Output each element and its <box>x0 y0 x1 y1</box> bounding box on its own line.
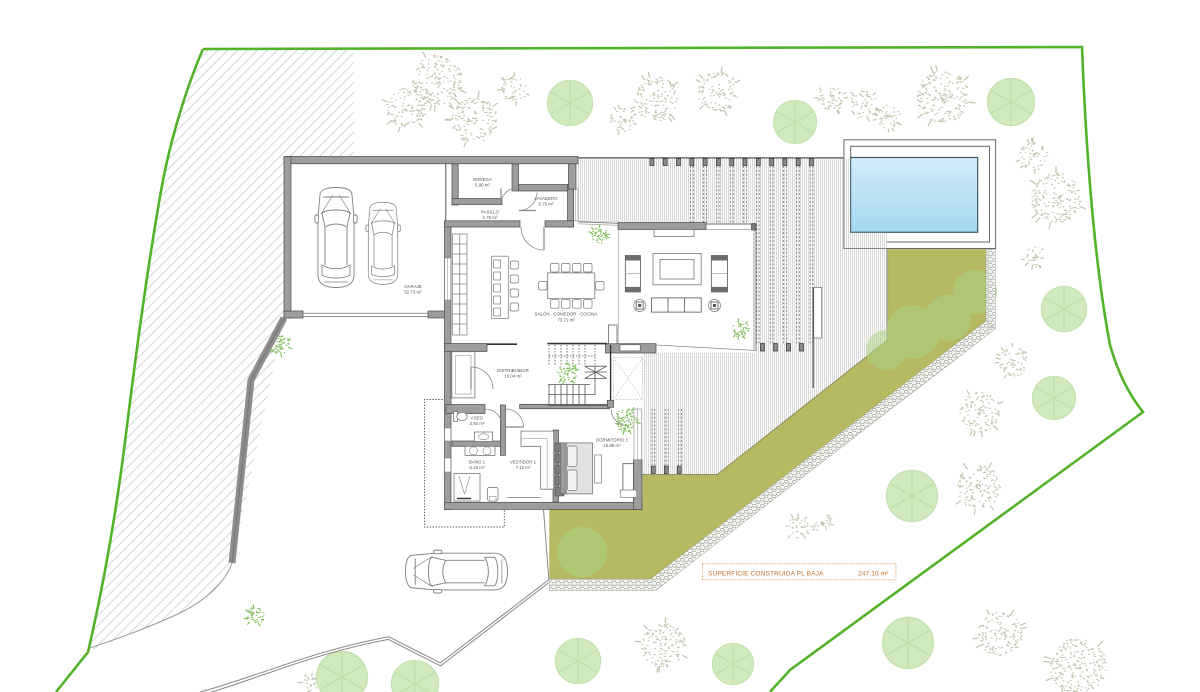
svg-text:PASILLO: PASILLO <box>481 210 500 215</box>
svg-text:LAVADERO: LAVADERO <box>534 196 558 201</box>
svg-text:16.04 m²: 16.04 m² <box>504 374 522 379</box>
svg-text:73.71 m²: 73.71 m² <box>557 318 575 323</box>
svg-text:2.75 m²: 2.75 m² <box>483 215 498 220</box>
svg-text:52.73 m²: 52.73 m² <box>404 290 422 295</box>
svg-text:5.90 m²: 5.90 m² <box>475 183 490 188</box>
svg-text:ASEO: ASEO <box>471 416 484 421</box>
svg-text:DISTRIBUIDOR: DISTRIBUIDOR <box>497 368 528 373</box>
svg-text:3.92 m²: 3.92 m² <box>470 421 485 426</box>
svg-text:GARAJE: GARAJE <box>404 284 422 289</box>
svg-text:7.12 m²: 7.12 m² <box>516 465 531 470</box>
svg-text:6.18 m²: 6.18 m² <box>470 465 485 470</box>
svg-text:BAÑO 1: BAÑO 1 <box>469 460 486 465</box>
svg-text:247.10 m²: 247.10 m² <box>858 571 889 578</box>
svg-text:DORMITORIO 1: DORMITORIO 1 <box>596 438 629 443</box>
svg-text:SALÓN - COMEDOR - COCINA: SALÓN - COMEDOR - COCINA <box>535 312 598 317</box>
svg-text:VESTIDOR 1: VESTIDOR 1 <box>510 460 537 465</box>
svg-text:6.75 m²: 6.75 m² <box>539 202 554 207</box>
svg-text:BODEGA: BODEGA <box>473 177 492 182</box>
svg-text:SUPERFICIE CONSTRUIDA PL BAJA: SUPERFICIE CONSTRUIDA PL BAJA <box>708 571 824 578</box>
svg-text:15.89 m²: 15.89 m² <box>603 443 621 448</box>
